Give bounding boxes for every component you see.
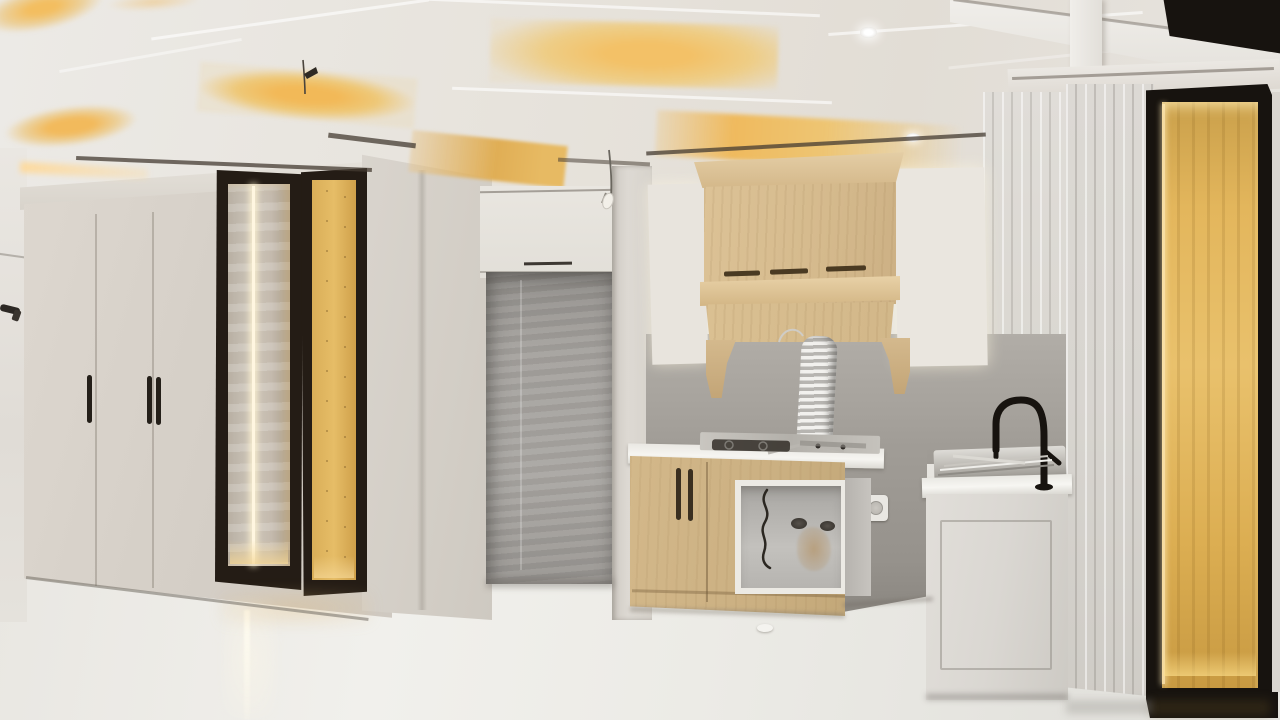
glass-panes [653, 188, 703, 359]
display-cabinet-lit-floor [230, 540, 288, 564]
glass-cabinet-right [894, 167, 987, 367]
right-display-lit-floor [1164, 652, 1256, 676]
carcass-stain [797, 527, 831, 571]
cove-light-centerwide [489, 18, 779, 90]
wardrobe-handle [87, 375, 92, 423]
floor-shadow-sink [926, 694, 1068, 700]
wardrobe-handle [156, 377, 161, 425]
floor-led-reflection [244, 610, 250, 720]
carcass-side-panel [845, 478, 871, 596]
fridge-niche-interior [486, 272, 614, 584]
kitchen-interior-photo [0, 0, 1280, 720]
floor-warm-reflection [220, 590, 372, 626]
wardrobe-door-seam [152, 212, 154, 588]
display-cabinet-interior-wood [312, 180, 356, 580]
led-strip [1162, 104, 1165, 684]
sink-cabinet-panel [940, 520, 1052, 670]
base-cabinet-seam [706, 462, 708, 602]
downlight [860, 27, 877, 38]
led-strip [252, 186, 255, 564]
shelf-pin-holes [326, 190, 328, 570]
hood-lower-panel [706, 302, 894, 342]
niche-seam [520, 280, 522, 570]
glass-cabinet-left [648, 183, 709, 364]
display-cabinet-lit-floor [314, 556, 354, 578]
base-cabinet-handle [688, 469, 693, 521]
shelf-pin-holes [344, 196, 346, 570]
glass-panes [899, 172, 982, 361]
floor-reflection-panelwall [1066, 700, 1152, 714]
gas-cooktop [700, 432, 880, 454]
right-display-interior [1162, 102, 1258, 688]
open-cabinet-carcass [735, 480, 847, 594]
paneled-wall-upper [983, 92, 1067, 354]
wardrobe-handle [147, 376, 152, 424]
display-cabinet-interior-film [228, 184, 290, 566]
mid-wall [362, 150, 492, 620]
mid-wall-corner-shade [417, 170, 427, 610]
power-outlet-socket [869, 501, 883, 515]
wardrobe-door-seam [95, 214, 97, 586]
floor-drain-cap [757, 624, 773, 632]
right-wall-sliver [1272, 92, 1280, 692]
base-cabinet-handle [676, 468, 681, 520]
paneled-tall-cabinet [1066, 84, 1154, 706]
floor-reflection-display [1150, 700, 1270, 716]
floor-shadow-niche [486, 578, 614, 588]
left-wall [0, 148, 27, 622]
carcass-hole [791, 518, 807, 529]
